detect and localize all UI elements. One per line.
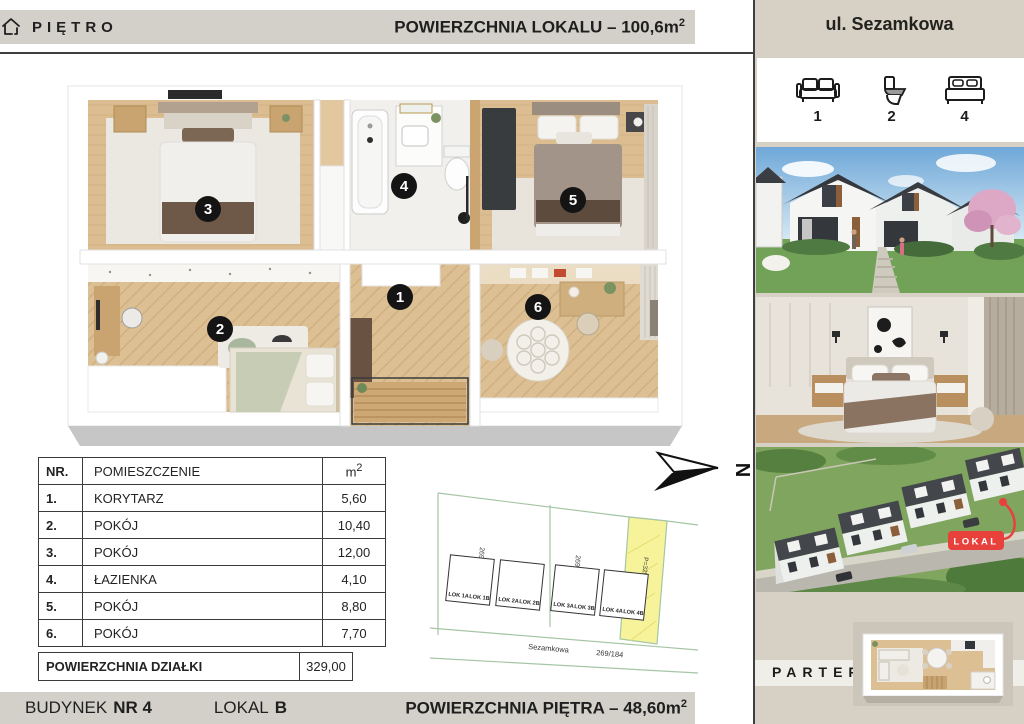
col-header-unit: m2	[323, 458, 386, 485]
bed-icon	[943, 75, 987, 107]
cell-area: 5,60	[323, 485, 386, 512]
floor-area-text: POWIERZCHNIA PIĘTRA – 48,60m2	[405, 698, 687, 719]
stat-count: 1	[813, 108, 821, 125]
cell-area: 10,40	[323, 512, 386, 539]
room-marker: 4	[400, 178, 409, 195]
cell-room: POKÓJ	[83, 539, 323, 566]
bedroom-photo	[756, 297, 1024, 443]
cell-nr: 5.	[39, 593, 83, 620]
cell-nr: 1.	[39, 485, 83, 512]
cell-room: POKÓJ	[83, 620, 323, 647]
stat-living-rooms: 1	[795, 75, 841, 125]
table-header-row: NR. POMIESZCZENIE m2	[39, 458, 386, 485]
cell-nr: 3.	[39, 539, 83, 566]
cell-room: POKÓJ	[83, 593, 323, 620]
level-label: PIĘTRO	[32, 19, 118, 36]
plot-area-value: 329,00	[300, 653, 353, 681]
cell-area: 12,00	[323, 539, 386, 566]
sidebar-divider	[753, 0, 755, 724]
unit-letter: LOKALB	[214, 698, 287, 718]
table-row: 4. ŁAZIENKA 4,10	[39, 566, 386, 593]
stat-bedrooms: 4	[943, 75, 987, 125]
table-row: 6. POKÓJ 7,70	[39, 620, 386, 647]
amenity-stats-box: 1 2 4	[757, 58, 1024, 142]
table-row: 3. POKÓJ 12,00	[39, 539, 386, 566]
cell-nr: 2.	[39, 512, 83, 539]
cell-nr: 4.	[39, 566, 83, 593]
cell-area: 4,10	[323, 566, 386, 593]
floor-plan-render: 1 2 3 4 5 6	[40, 60, 700, 460]
cell-room: ŁAZIENKA	[83, 566, 323, 593]
room-marker: 3	[204, 201, 212, 218]
footer-bar: BUDYNEKNR 4 LOKALB POWIERZCHNIA PIĘTRA –…	[0, 692, 695, 724]
stat-count: 4	[960, 108, 968, 125]
exterior-photo	[756, 147, 1024, 293]
street-parcel-number: 269/184	[596, 648, 624, 659]
table-row: 5. POKÓJ 8,80	[39, 593, 386, 620]
cell-area: 7,70	[323, 620, 386, 647]
room-marker: 1	[396, 289, 404, 306]
cell-area: 8,80	[323, 593, 386, 620]
plot-area-label: POWIERZCHNIA DZIAŁKI	[39, 653, 300, 681]
north-label: N	[731, 463, 750, 477]
cell-room: POKÓJ	[83, 512, 323, 539]
col-header-room: POMIESZCZENIE	[83, 458, 323, 485]
stat-bathrooms: 2	[875, 75, 909, 125]
plot-area-table: POWIERZCHNIA DZIAŁKI 329,00	[38, 652, 353, 681]
unit-area-text: POWIERZCHNIA LOKALU – 100,6m2	[394, 17, 685, 38]
ground-floor-thumbnail	[853, 622, 1013, 706]
cell-room: KORYTARZ	[83, 485, 323, 512]
parter-label: PARTER	[772, 664, 865, 680]
col-header-nr: NR.	[39, 458, 83, 485]
lokal-pointer-dot	[999, 498, 1007, 506]
cell-nr: 6.	[39, 620, 83, 647]
room-marker: 6	[534, 299, 542, 316]
header-bar: PIĘTRO POWIERZCHNIA LOKALU – 100,6m2	[0, 10, 695, 44]
house-icon	[0, 16, 22, 38]
north-arrow: N	[654, 453, 750, 491]
toilet-icon	[875, 75, 909, 107]
room-3-bedroom	[88, 90, 318, 250]
building-number: BUDYNEKNR 4	[25, 698, 152, 718]
wardrobe	[482, 108, 516, 210]
stat-count: 2	[887, 108, 895, 125]
room-5-bedroom	[480, 100, 658, 250]
aerial-photo: LOKAL	[756, 447, 1024, 592]
table-row: POWIERZCHNIA DZIAŁKI 329,00	[39, 653, 353, 681]
room-1-corridor	[350, 264, 470, 426]
building-footprints: LOK 1A LOK 1B LOK 2A LOK 2B LOK 3A LOK 3…	[446, 555, 649, 620]
room-marker: 5	[569, 192, 577, 209]
sofa-icon	[795, 75, 841, 107]
table-row: 2. POKÓJ 10,40	[39, 512, 386, 539]
lokal-badge: LOKAL	[948, 531, 1004, 550]
svg-text:LOKAL: LOKAL	[953, 537, 998, 548]
brochure-page: PIĘTRO POWIERZCHNIA LOKALU – 100,6m2 ul.…	[0, 0, 1024, 724]
street-title: ul. Sezamkowa	[755, 14, 1024, 35]
room-6-bedroom	[480, 264, 658, 412]
site-plan: N P=329 m2 269/186 269/185 LOK 1A LOK 1B	[420, 445, 750, 685]
room-marker: 2	[216, 321, 224, 338]
table-row: 1. KORYTARZ 5,60	[39, 485, 386, 512]
room-table: NR. POMIESZCZENIE m2 1. KORYTARZ 5,60 2.…	[38, 457, 386, 647]
street-name: Sezamkowa	[528, 642, 570, 655]
